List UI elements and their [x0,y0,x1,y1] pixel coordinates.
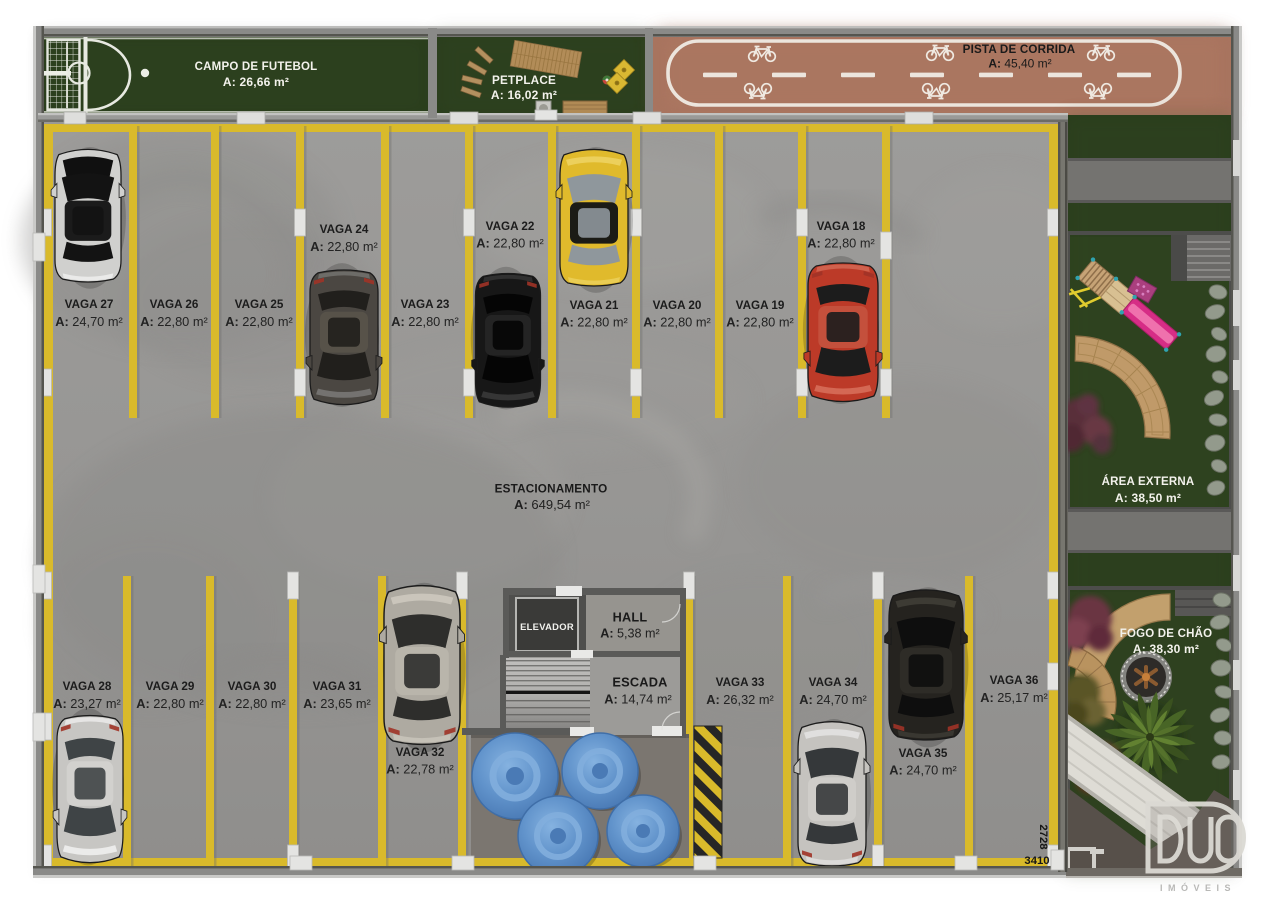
svg-text:A: 22,80 m²: A: 22,80 m² [476,236,544,251]
svg-text:VAGA 28: VAGA 28 [63,680,112,693]
svg-text:A: 23,65 m²: A: 23,65 m² [303,696,371,711]
svg-text:A: 22,80 m²: A: 22,80 m² [643,315,711,330]
svg-text:A: 22,80 m²: A: 22,80 m² [726,315,794,330]
svg-text:VAGA 20: VAGA 20 [653,299,702,312]
svg-text:VAGA 19: VAGA 19 [736,299,785,312]
svg-text:VAGA 25: VAGA 25 [235,298,284,311]
svg-text:A: 22,80 m²: A: 22,80 m² [140,314,208,329]
svg-text:A: 22,80 m²: A: 22,80 m² [218,696,286,711]
svg-text:ELEVADOR: ELEVADOR [520,621,574,632]
svg-text:VAGA 18: VAGA 18 [817,220,866,233]
svg-text:3410: 3410 [1024,855,1049,867]
svg-text:A: 24,70 m²: A: 24,70 m² [55,314,123,329]
svg-text:VAGA 34: VAGA 34 [809,676,858,689]
svg-text:ÁREA EXTERNA: ÁREA EXTERNA [1102,475,1195,488]
svg-text:VAGA 23: VAGA 23 [401,298,450,311]
svg-text:VAGA 21: VAGA 21 [570,299,619,312]
svg-text:A: 24,70 m²: A: 24,70 m² [799,692,867,707]
svg-text:VAGA 35: VAGA 35 [899,747,948,760]
svg-text:A: 26,32 m²: A: 26,32 m² [706,692,774,707]
svg-text:2728: 2728 [1037,824,1049,849]
svg-text:HALL: HALL [613,611,648,625]
svg-text:A: 22,80 m²: A: 22,80 m² [807,236,875,251]
svg-text:A: 26,66 m²: A: 26,66 m² [223,75,289,89]
svg-text:A: 22,80 m²: A: 22,80 m² [136,696,204,711]
svg-text:A: 22,80 m²: A: 22,80 m² [310,239,378,254]
svg-text:A: 22,80 m²: A: 22,80 m² [560,315,628,330]
svg-text:A: 22,78 m²: A: 22,78 m² [386,762,454,777]
svg-text:ESCADA: ESCADA [612,675,667,690]
svg-text:FOGO DE CHÃO: FOGO DE CHÃO [1120,627,1213,640]
svg-text:A: 5,38 m²: A: 5,38 m² [600,627,660,641]
svg-text:A: 45,40 m²: A: 45,40 m² [988,57,1051,71]
svg-text:A: 38,50 m²: A: 38,50 m² [1115,491,1181,505]
svg-text:VAGA 24: VAGA 24 [320,223,369,236]
svg-text:ESTACIONAMENTO: ESTACIONAMENTO [495,483,608,496]
svg-text:VAGA 26: VAGA 26 [150,298,199,311]
svg-text:VAGA 22: VAGA 22 [486,220,535,233]
svg-text:VAGA 31: VAGA 31 [313,680,362,693]
svg-text:A: 25,17 m²: A: 25,17 m² [980,690,1048,705]
svg-text:CAMPO DE FUTEBOL: CAMPO DE FUTEBOL [195,61,318,73]
svg-text:A: 22,80 m²: A: 22,80 m² [391,314,459,329]
svg-text:A: 24,70 m²: A: 24,70 m² [889,763,957,778]
svg-text:A: 14,74 m²: A: 14,74 m² [604,692,672,707]
svg-text:IMÓVEIS: IMÓVEIS [1160,882,1236,893]
svg-text:VAGA 30: VAGA 30 [228,680,277,693]
svg-text:A: 38,30 m²: A: 38,30 m² [1133,642,1199,656]
svg-text:A: 22,80 m²: A: 22,80 m² [225,314,293,329]
svg-text:PETPLACE: PETPLACE [492,74,556,87]
svg-text:VAGA 29: VAGA 29 [146,680,195,693]
svg-text:VAGA 33: VAGA 33 [716,676,765,689]
svg-text:VAGA 27: VAGA 27 [65,298,114,311]
svg-text:A: 649,54 m²: A: 649,54 m² [514,497,591,512]
svg-text:PISTA DE CORRIDA: PISTA DE CORRIDA [963,43,1076,56]
svg-text:VAGA 36: VAGA 36 [990,674,1039,687]
svg-text:A: 16,02 m²: A: 16,02 m² [491,88,557,102]
